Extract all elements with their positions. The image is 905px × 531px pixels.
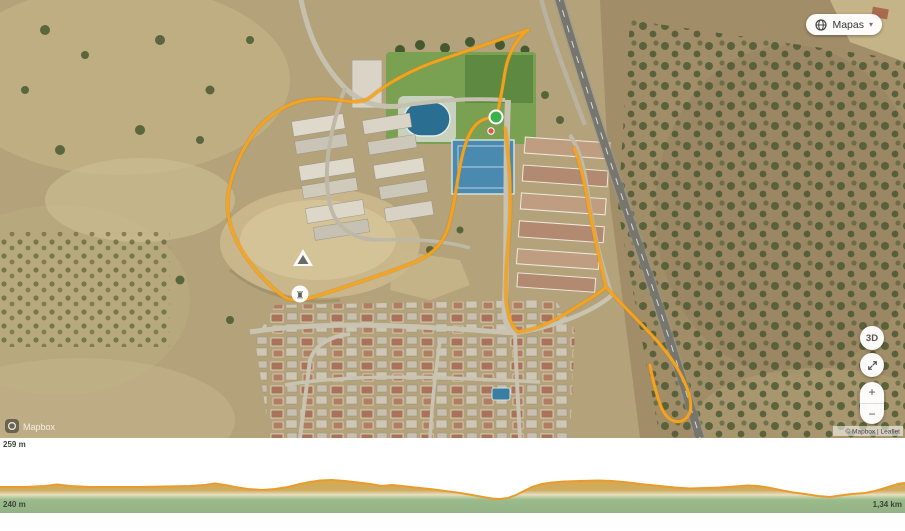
oak-woodland xyxy=(618,20,905,438)
satellite-map: ♜ Mapbox © Mapbox | Leaflet xyxy=(0,0,905,438)
3d-view-button[interactable]: 3D xyxy=(860,326,884,350)
chevron-down-icon: ▾ xyxy=(869,20,873,29)
layers-button[interactable]: Mapas ▾ xyxy=(806,14,882,35)
zoom-control: + − xyxy=(860,382,884,424)
fit-bounds-button[interactable] xyxy=(860,353,884,377)
layers-button-label: Mapas xyxy=(832,19,864,31)
ruin-marker-glyph: ♜ xyxy=(296,291,305,302)
olive-grove xyxy=(0,232,170,347)
min-altitude-label: 240 m xyxy=(3,500,26,509)
start-marker[interactable] xyxy=(490,111,503,124)
max-altitude-label: 259 m xyxy=(3,440,26,449)
small-pool xyxy=(492,388,510,400)
elevation-profile-section[interactable]: 259 m 240 m 1,34 km xyxy=(0,438,905,526)
map-watermark: Mapbox xyxy=(5,419,56,433)
zoom-out-button[interactable]: − xyxy=(860,404,884,425)
total-distance-label: 1,34 km xyxy=(873,500,902,509)
attribution-label: © Mapbox | Leaflet xyxy=(845,428,900,436)
globe-icon xyxy=(815,19,827,31)
swimming-pool xyxy=(404,102,450,136)
elevation-chart[interactable] xyxy=(0,438,905,526)
map-attribution[interactable]: © Mapbox | Leaflet xyxy=(833,426,903,436)
zoom-in-button[interactable]: + xyxy=(860,382,884,404)
elevation-area xyxy=(0,480,905,513)
watermark-label: Mapbox xyxy=(23,422,56,432)
expand-arrows-icon xyxy=(866,359,879,372)
waypoint-dot[interactable] xyxy=(488,128,494,134)
3d-button-label: 3D xyxy=(866,333,878,344)
map-canvas[interactable]: ♜ Mapbox © Mapbox | Leaflet Mapas ▾ 3D +… xyxy=(0,0,905,438)
